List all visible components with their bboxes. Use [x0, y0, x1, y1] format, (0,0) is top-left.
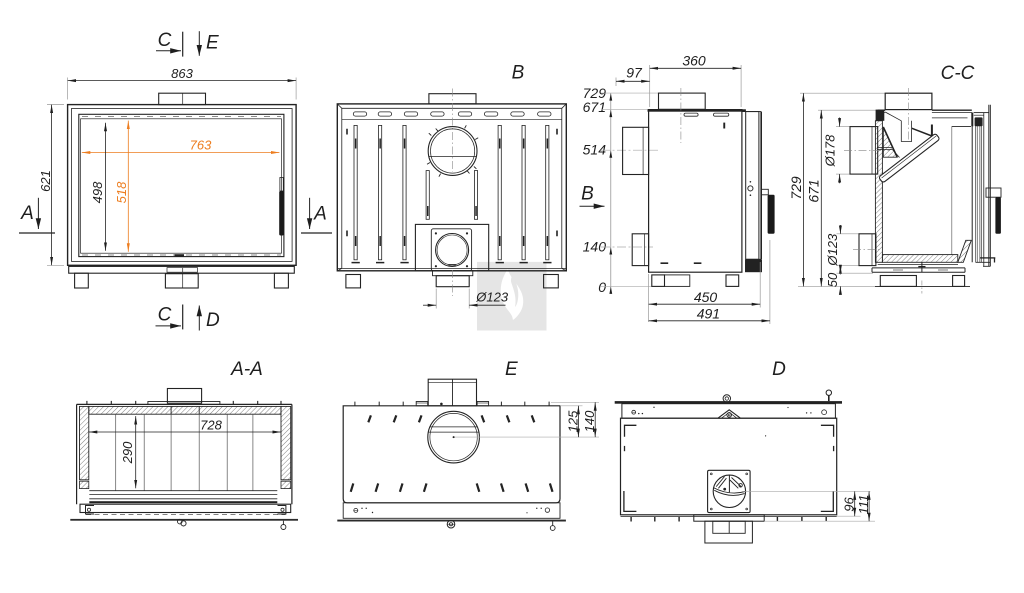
svg-text:B: B	[512, 63, 525, 84]
svg-text:140: 140	[583, 239, 607, 255]
svg-text:671: 671	[583, 99, 606, 115]
svg-text:E: E	[505, 359, 518, 380]
svg-text:729: 729	[788, 176, 804, 200]
svg-text:C-C: C-C	[941, 63, 975, 84]
svg-text:C: C	[158, 304, 172, 325]
svg-text:763: 763	[190, 137, 212, 152]
svg-text:498: 498	[90, 181, 105, 203]
svg-text:Ø178: Ø178	[823, 134, 838, 168]
svg-text:B: B	[581, 184, 594, 205]
svg-text:140: 140	[582, 410, 597, 432]
svg-text:D: D	[772, 359, 786, 380]
svg-text:491: 491	[697, 305, 720, 321]
svg-text:728: 728	[200, 418, 222, 433]
svg-text:290: 290	[120, 441, 135, 464]
svg-text:111: 111	[856, 495, 871, 515]
svg-text:360: 360	[682, 53, 706, 69]
svg-text:125: 125	[565, 410, 580, 432]
svg-text:514: 514	[583, 142, 607, 158]
svg-text:96: 96	[841, 497, 856, 512]
svg-text:518: 518	[114, 181, 129, 203]
svg-text:50: 50	[825, 272, 840, 287]
svg-text:0: 0	[598, 279, 606, 295]
svg-text:A: A	[20, 203, 34, 224]
svg-text:D: D	[206, 310, 220, 331]
svg-text:Ø123: Ø123	[475, 290, 509, 305]
svg-text:C: C	[158, 30, 172, 51]
svg-text:Ø123: Ø123	[825, 233, 840, 267]
svg-text:450: 450	[694, 289, 718, 305]
svg-text:A: A	[313, 204, 327, 225]
svg-text:97: 97	[626, 65, 643, 81]
svg-text:A-A: A-A	[230, 359, 263, 380]
svg-text:621: 621	[38, 170, 53, 192]
svg-text:671: 671	[806, 179, 822, 202]
svg-text:E: E	[206, 33, 219, 54]
svg-text:863: 863	[171, 66, 193, 81]
